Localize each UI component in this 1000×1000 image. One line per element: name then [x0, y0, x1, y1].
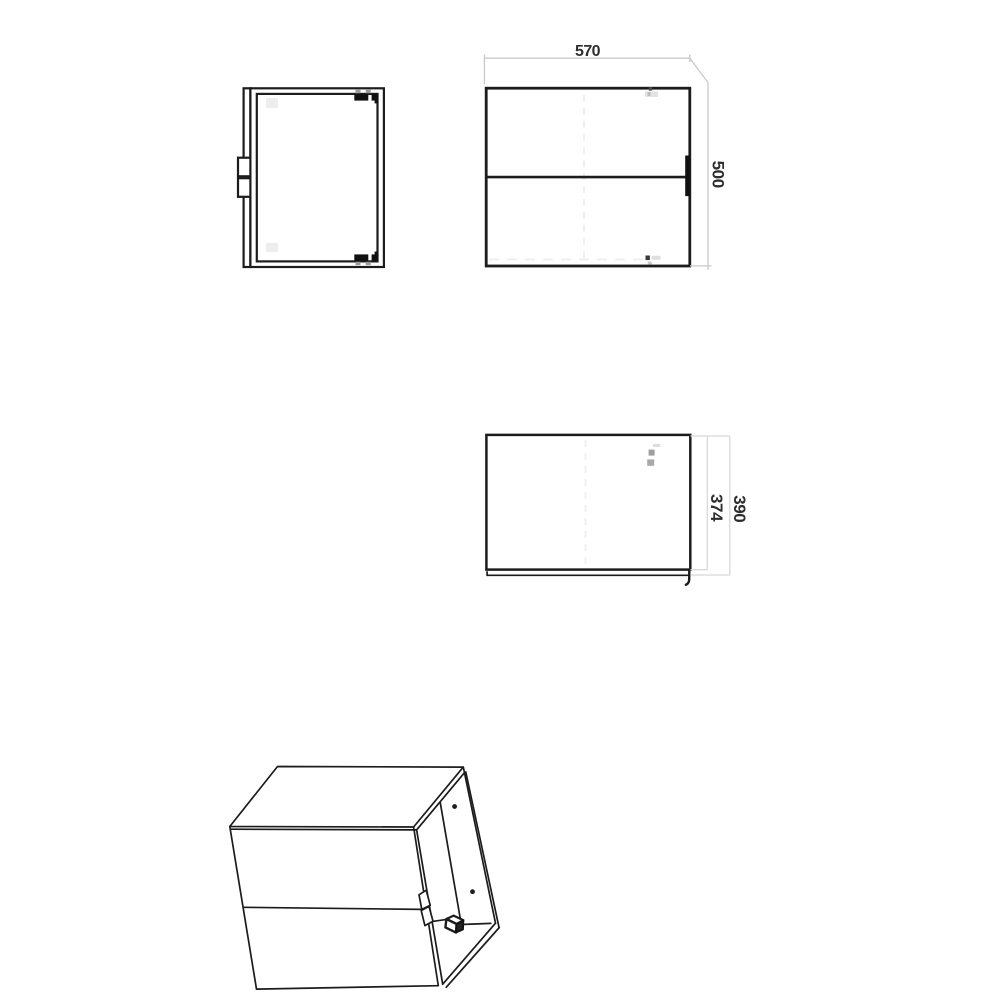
svg-text:374: 374	[707, 494, 726, 522]
svg-text:570: 570	[575, 43, 601, 60]
svg-text:500: 500	[708, 161, 727, 188]
svg-text:390: 390	[730, 495, 749, 522]
